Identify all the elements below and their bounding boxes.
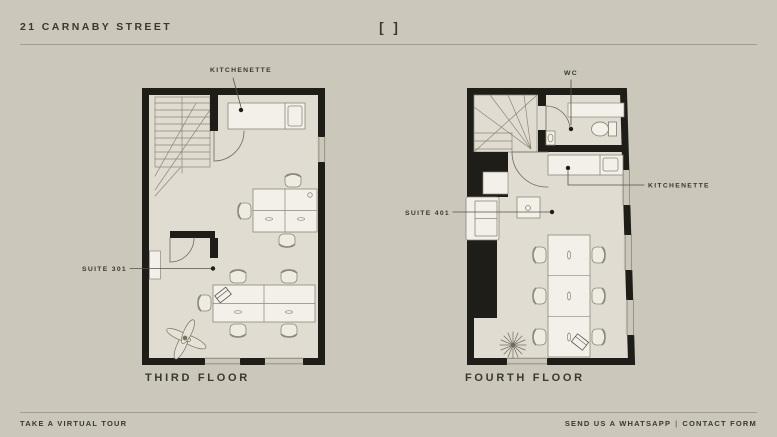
sofa	[466, 197, 499, 240]
window	[265, 357, 303, 366]
label-dot	[566, 166, 570, 170]
virtual-tour-link[interactable]: TAKE A VIRTUAL TOUR	[20, 419, 127, 428]
footer-divider	[20, 412, 757, 413]
chair	[533, 288, 546, 304]
chair	[198, 295, 211, 311]
chair	[592, 288, 605, 304]
kitchenette-counter	[548, 155, 623, 175]
chair	[230, 270, 246, 283]
radiator	[150, 251, 161, 279]
wc-shelf	[568, 103, 624, 117]
kitchenette-counter	[228, 103, 305, 129]
third-floor-plan: KITCHENETTE SUITE 301	[60, 55, 350, 375]
footer-links: SEND US A WHATSAPP|CONTACT FORM	[565, 419, 757, 428]
svg-text:SUITE 301: SUITE 301	[82, 266, 127, 273]
label-dot	[550, 210, 554, 214]
wall-stub	[170, 231, 215, 238]
meeting-table	[533, 235, 605, 357]
wall-stub	[538, 130, 546, 152]
chair	[285, 174, 301, 187]
side-table	[517, 197, 540, 218]
window	[318, 137, 327, 162]
label-dot	[239, 108, 243, 112]
third-floor-caption: THIRD FLOOR	[145, 372, 250, 384]
chair	[592, 329, 605, 345]
chair	[279, 234, 295, 247]
chair	[533, 247, 546, 263]
fourth-floor-caption: FOURTH FLOOR	[465, 372, 585, 384]
window	[626, 300, 635, 335]
floorplan-viewer: 21 CARNABY STREET [ ]	[0, 0, 777, 437]
window	[624, 235, 633, 270]
chair	[281, 324, 297, 337]
label-dot	[211, 266, 215, 270]
fullscreen-icon[interactable]: [ ]	[368, 18, 412, 37]
svg-text:SUITE 401: SUITE 401	[405, 210, 450, 217]
chair	[238, 203, 251, 219]
chair	[592, 247, 605, 263]
toilet	[592, 122, 617, 136]
fourth-floor-plan: WC KITCHENETTE SUITE 401	[400, 55, 720, 375]
page-title: 21 CARNABY STREET	[20, 21, 172, 33]
wall-stub	[210, 95, 218, 131]
svg-text:KITCHENETTE: KITCHENETTE	[210, 67, 272, 74]
label-dot	[569, 127, 573, 131]
svg-text:WC: WC	[564, 70, 578, 77]
wall-stub	[545, 145, 625, 152]
svg-text:KITCHENETTE: KITCHENETTE	[648, 183, 710, 190]
header-divider	[20, 44, 757, 45]
wall-stub	[538, 91, 546, 106]
plant	[500, 332, 526, 358]
wall-stub	[210, 238, 218, 258]
window	[507, 357, 547, 366]
sink	[546, 131, 555, 145]
contact-form-link[interactable]: CONTACT FORM	[682, 419, 757, 428]
chair	[533, 329, 546, 345]
whatsapp-link[interactable]: SEND US A WHATSAPP	[565, 419, 671, 428]
chair	[281, 270, 297, 283]
window	[205, 357, 240, 366]
chair	[230, 324, 246, 337]
wall-stub	[470, 240, 497, 318]
footer-separator: |	[675, 419, 678, 428]
storage-alcove	[483, 172, 508, 194]
